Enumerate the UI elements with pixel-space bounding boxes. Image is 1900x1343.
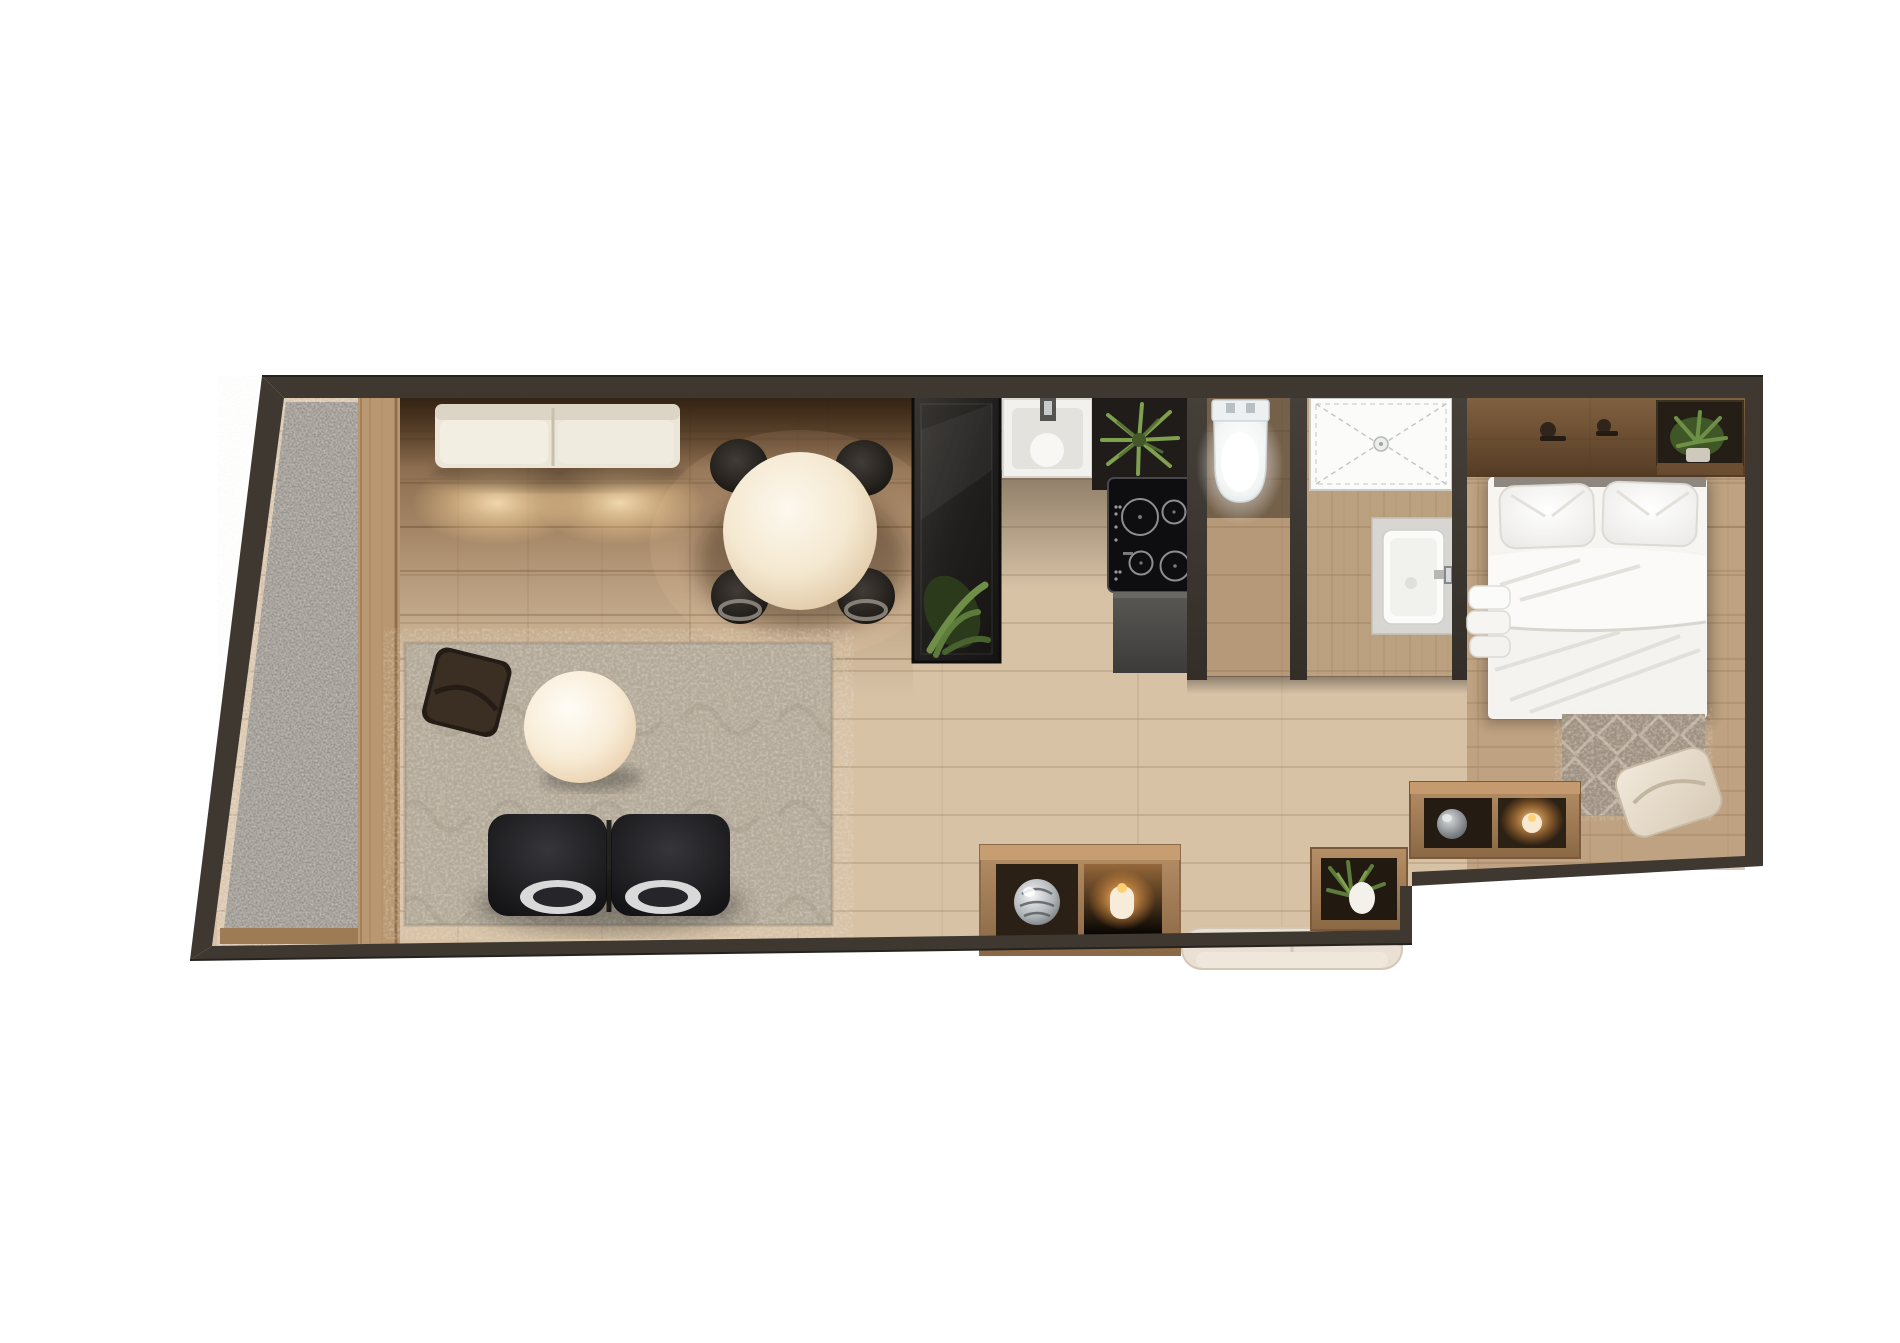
- wall-step: [1400, 886, 1412, 944]
- sanitary-threshold-shadow: [1187, 676, 1467, 694]
- bed-pillow: [1602, 481, 1698, 546]
- wall-shower-bedroom: [1452, 393, 1467, 680]
- floorplan-svg: [0, 0, 1900, 1343]
- wall-wc-shower: [1290, 393, 1307, 680]
- kitchen-shelf: [1092, 393, 1187, 490]
- decor-vase: [1437, 809, 1467, 839]
- bench-overhang: [1196, 952, 1388, 968]
- kitchen-sink: [1003, 397, 1092, 477]
- toilet: [1212, 400, 1269, 502]
- induction-cooktop: [1108, 478, 1192, 592]
- double-bed: [1467, 477, 1712, 724]
- chrome-stool: [625, 880, 701, 914]
- planter-box: [1311, 848, 1407, 930]
- bedside-console: [1410, 782, 1580, 858]
- headboard-shelf: [1467, 398, 1745, 477]
- glass-ball-vase: [1014, 879, 1060, 925]
- black-loveseat: [475, 814, 745, 933]
- lit-candle: [1088, 870, 1156, 930]
- lit-candle: [1500, 794, 1564, 846]
- cream-sofa: [433, 404, 683, 490]
- balcony-sill: [220, 928, 358, 944]
- wall-top: [262, 376, 1763, 398]
- duvet: [1489, 548, 1706, 718]
- round-dining-table: [723, 452, 877, 610]
- kitchen-counter: [1113, 592, 1192, 673]
- floorplan-stage: [0, 0, 1900, 1343]
- wall-right: [1745, 376, 1763, 866]
- towel-stack: [1467, 586, 1510, 657]
- chrome-stool: [520, 880, 596, 914]
- black-wardrobe: [913, 395, 1000, 662]
- shower-tray: [1310, 398, 1452, 490]
- bed-pillow: [1499, 484, 1595, 549]
- washbasin: [1372, 518, 1457, 634]
- dining-set: [697, 439, 907, 630]
